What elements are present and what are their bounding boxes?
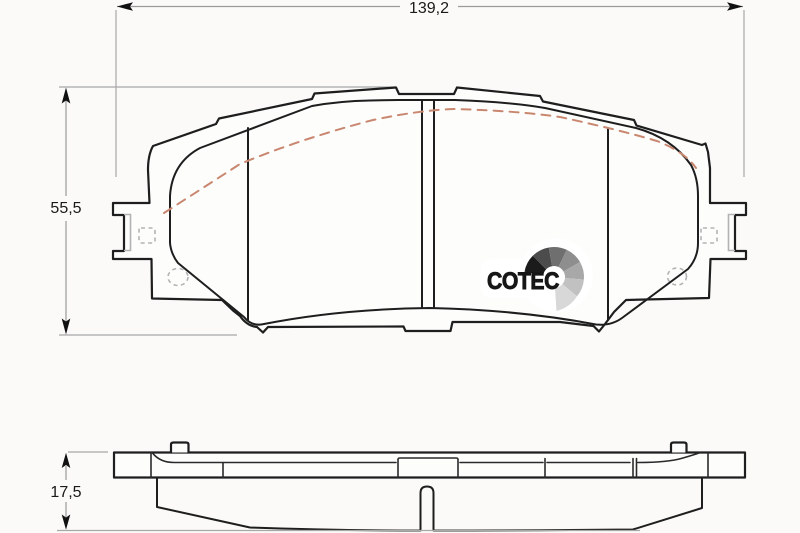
width-dimension-label: 139,2 [409,0,449,17]
friction-material-profile [157,478,702,531]
thickness-dimension-label: 17,5 [50,484,81,501]
front-view [113,88,746,333]
arrowhead-up [62,453,71,468]
backplate-tab-left [171,443,189,453]
drawing-canvas: 139,2 55,5 [0,0,800,533]
profile-view [114,443,745,531]
backplate-tab-right [671,443,687,453]
brake-pad-technical-drawing: 139,2 55,5 [0,0,800,533]
backplate-profile-outline [114,453,745,478]
height-dimension-label: 55,5 [50,200,81,217]
logo-wordmark: COTEC [487,268,559,295]
